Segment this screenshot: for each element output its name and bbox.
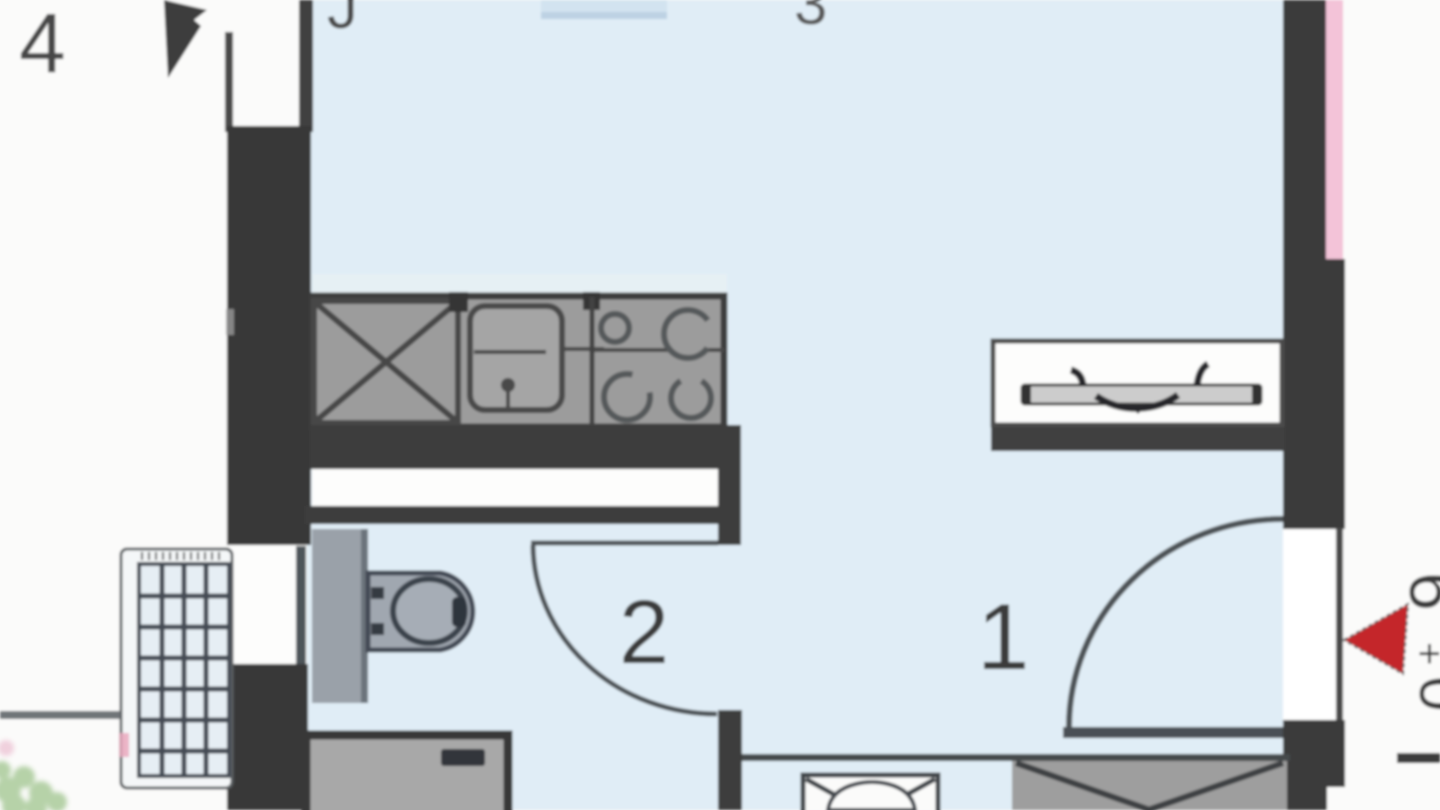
svg-text:1: 1: [977, 584, 1029, 689]
svg-text:+: +: [1407, 642, 1440, 665]
svg-text:3: 3: [794, 0, 827, 37]
svg-text:4: 4: [19, 0, 66, 90]
svg-text:0: 0: [1406, 676, 1440, 712]
svg-text:6: 6: [1395, 572, 1440, 611]
svg-text:2: 2: [619, 583, 669, 683]
svg-text:J: J: [327, 0, 358, 42]
